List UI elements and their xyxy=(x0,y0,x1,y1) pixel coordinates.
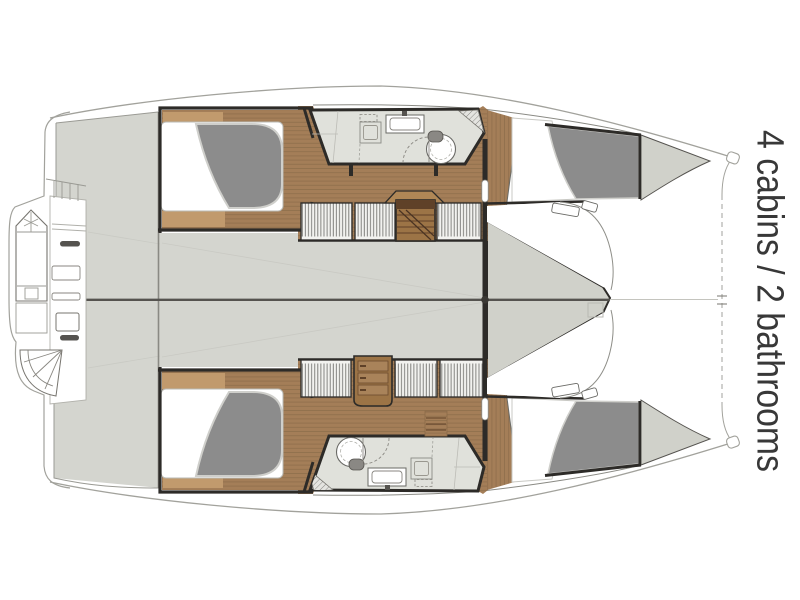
svg-text:4 cabins / 2 bathrooms: 4 cabins / 2 bathrooms xyxy=(749,130,791,472)
